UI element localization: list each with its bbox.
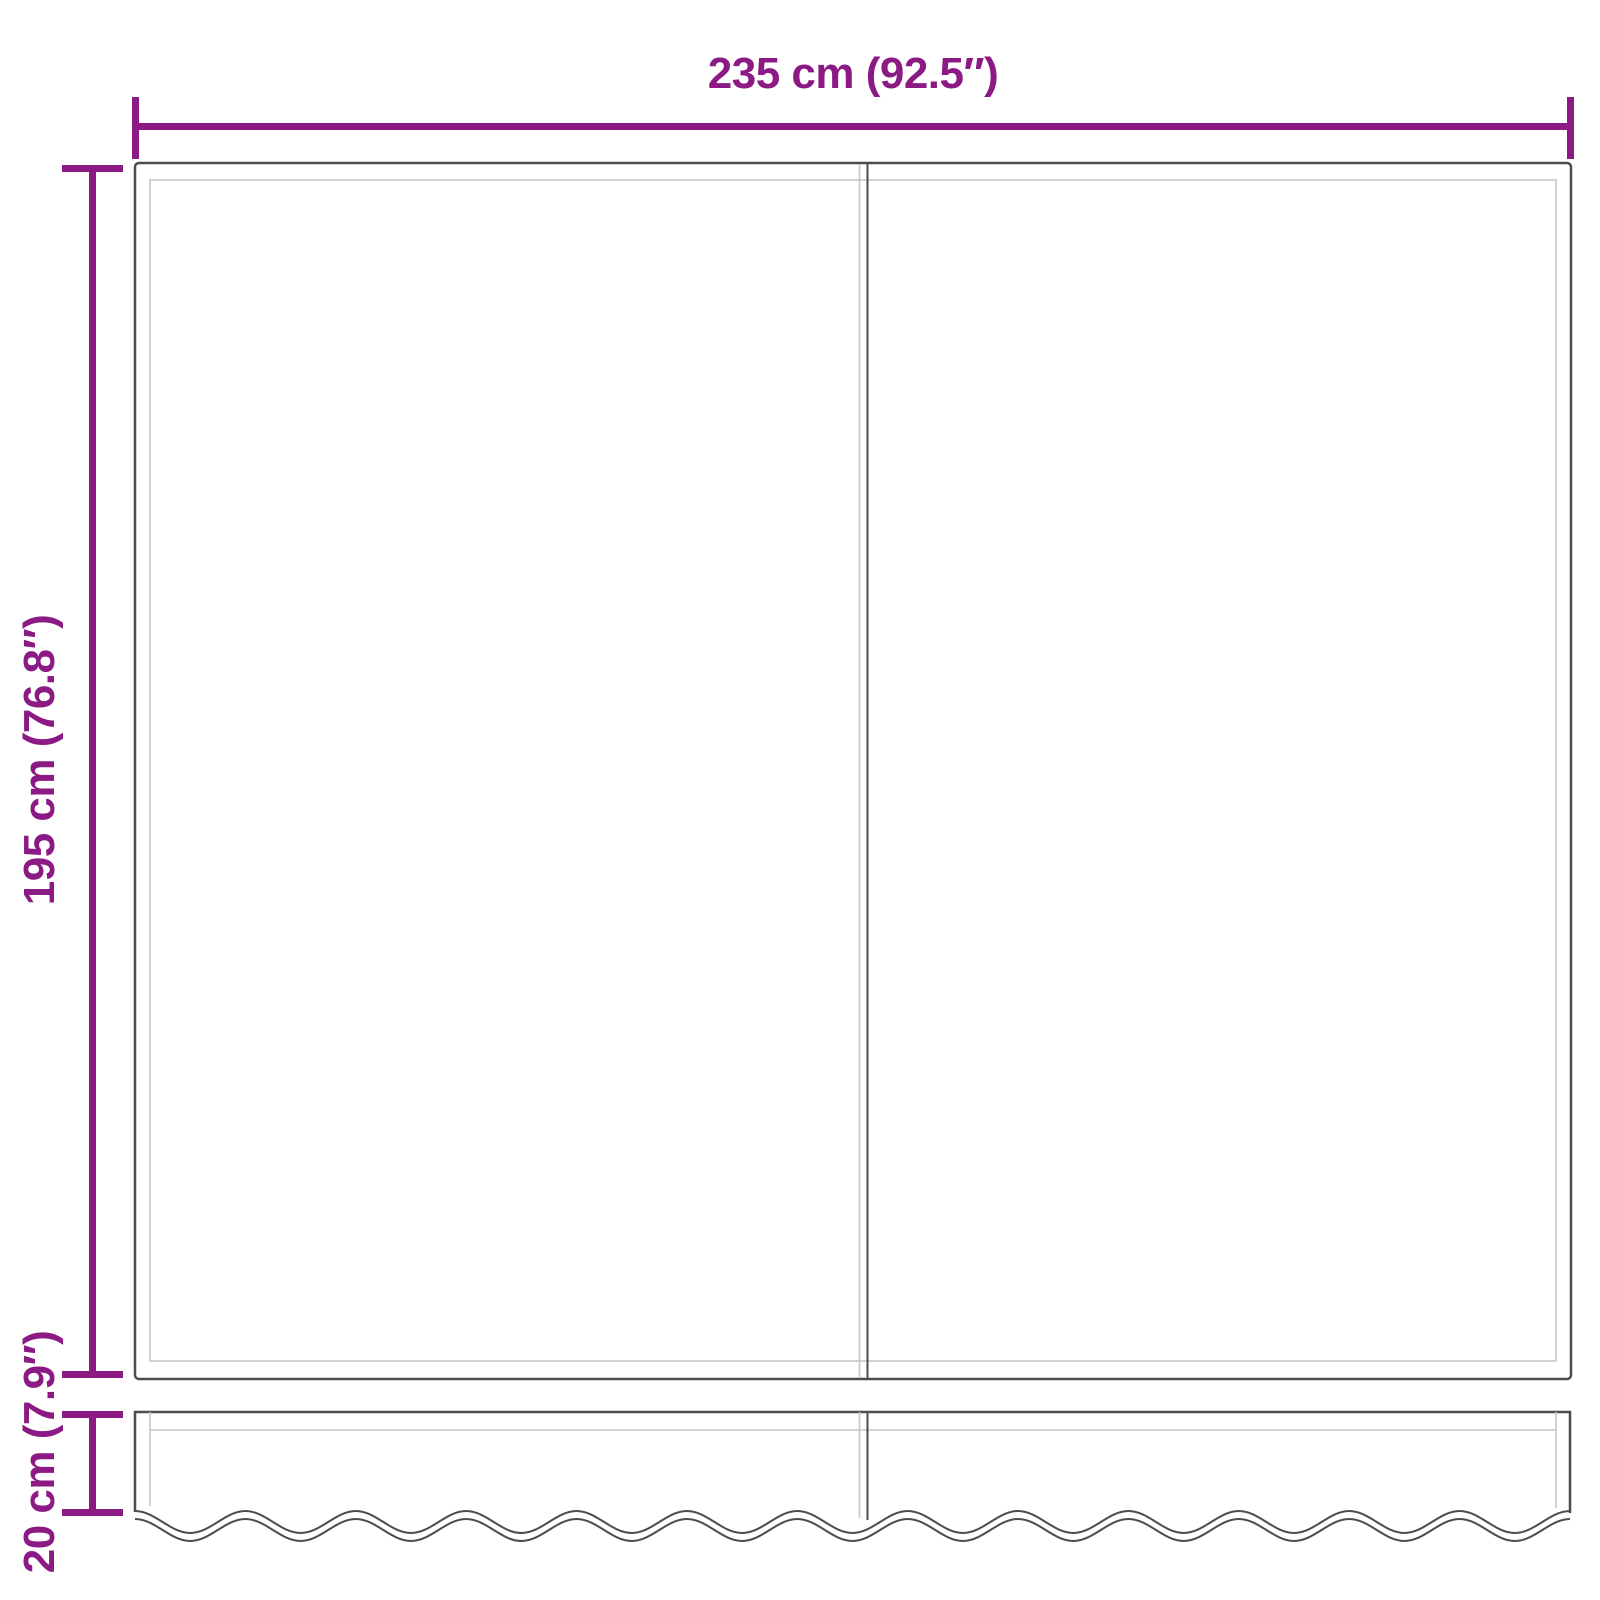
height-dimension-cap-top: [62, 165, 123, 172]
height-dimension-label: 195 cm (76.8″): [18, 615, 62, 905]
fabric-panel-inner-stitch: [150, 180, 1556, 1361]
awning-fabric-drawing: [0, 0, 1600, 1600]
width-dimension-cap-left: [132, 97, 139, 159]
height-dimension: [62, 165, 123, 1378]
fabric-panel: [135, 163, 1571, 1379]
valance-wave-inner: [135, 1519, 1570, 1541]
width-dimension-label: 235 cm (92.5″): [708, 52, 998, 96]
product-dimension-diagram: 235 cm (92.5″) 195 cm (76.8″) 20 cm (7.9…: [0, 0, 1600, 1600]
valance-dimension-cap-bottom: [62, 1509, 123, 1516]
valance-dimension-line: [89, 1414, 96, 1513]
height-dimension-line: [89, 168, 96, 1375]
valance-strip: [134, 1411, 1571, 1541]
valance-wave-outer: [135, 1511, 1570, 1533]
height-dimension-cap-bottom: [62, 1371, 123, 1378]
fabric-panel-outline: [135, 163, 1571, 1379]
width-dimension: [132, 97, 1574, 159]
valance-dimension-cap-top: [62, 1411, 123, 1418]
valance-height-dimension-label: 20 cm (7.9″): [18, 1331, 62, 1574]
width-dimension-cap-right: [1567, 97, 1574, 159]
width-dimension-line: [136, 123, 1570, 130]
valance-height-dimension: [62, 1411, 123, 1516]
